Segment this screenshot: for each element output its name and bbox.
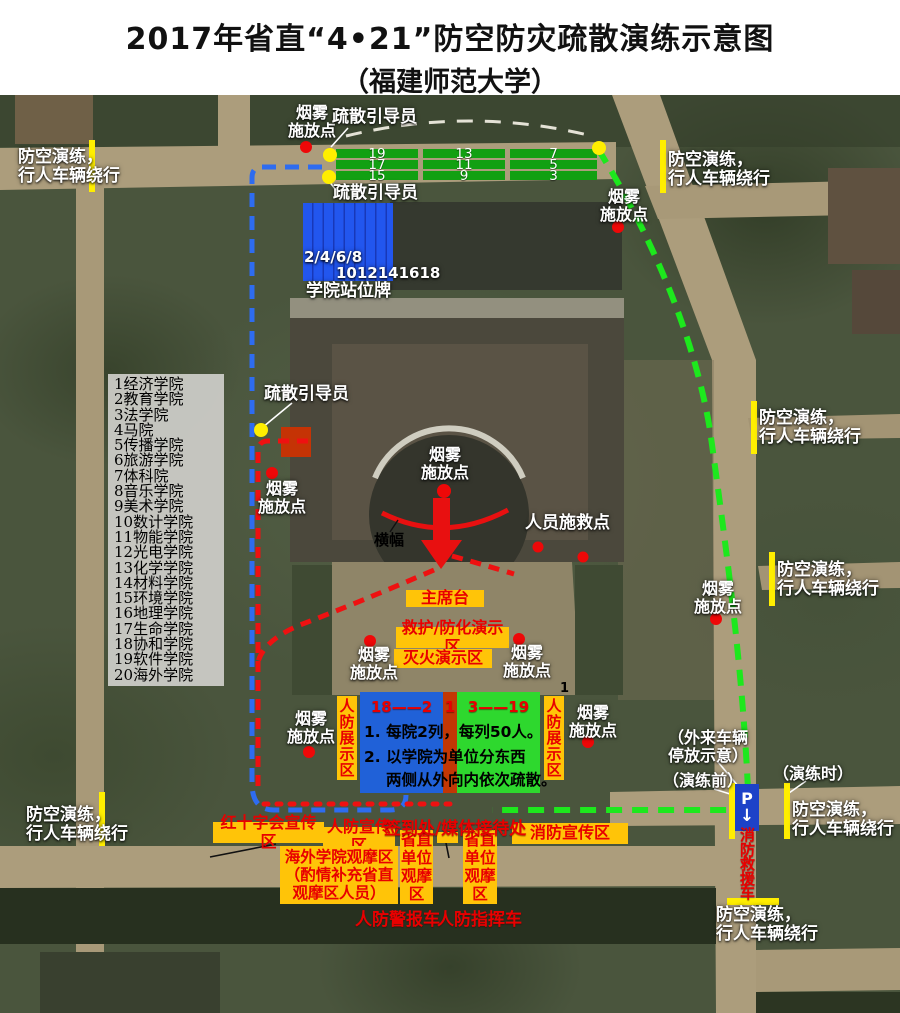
zone-fire-promo: 消防宣传区 (512, 823, 628, 844)
detour-label-northwest: 防空演练， 行人车辆绕行 (18, 148, 120, 186)
road-closure-bar (769, 552, 775, 606)
guide-label-top: 疏散引导员 (332, 108, 417, 127)
formation-note-3: 两侧从外向内依次疏散。 (386, 768, 557, 790)
station-sign-label: 学院站位牌 (306, 282, 391, 301)
road-closure-bar (784, 783, 790, 839)
rescue-point-dot (578, 552, 589, 563)
guide-dot (254, 423, 268, 437)
guide-dot (322, 170, 336, 184)
detour-label-northeast: 防空演练， 行人车辆绕行 (668, 151, 770, 189)
zone-provincial-viewing-west: 省直单位观摩区 (400, 830, 433, 904)
rescue-point-dot (533, 542, 544, 553)
checkin-label: 签到处/媒体接待处 (384, 814, 526, 839)
road-closure-bar (660, 140, 666, 193)
title-block: 2017年省直“4•21”防空防灾疏散演练示意图 （福建师范大学） (0, 0, 900, 95)
detour-label-southeast: 防空演练， 行人车辆绕行 (716, 906, 818, 944)
page-title: 2017年省直“4•21”防空防灾疏散演练示意图 (0, 14, 900, 58)
smoke-label: 烟雾 施放点 (594, 188, 654, 224)
smoke-label: 烟雾 施放点 (497, 644, 557, 680)
road-closure-bar (751, 401, 757, 454)
smoke-point-dot (437, 484, 451, 498)
smoke-label: 烟雾 施放点 (281, 710, 341, 746)
guide-dot (323, 148, 337, 162)
smoke-point-dot (303, 746, 315, 758)
zone-aid-demo: 救护/防化演示区 (396, 627, 509, 648)
smoke-label: 烟雾 施放点 (252, 480, 312, 516)
guide-label-mid: 疏散引导员 (333, 184, 418, 203)
page-subtitle: （福建师范大学） (0, 60, 900, 99)
zone-provincial-viewing-east: 省直单位观摩区 (463, 830, 497, 904)
detour-label-east1: 防空演练， 行人车辆绕行 (759, 409, 861, 447)
detour-label-east2: 防空演练， 行人车辆绕行 (777, 561, 879, 599)
stray-index-label: 1 (560, 681, 569, 696)
during-drill-label: （演练时） (773, 765, 853, 783)
evacuation-drill-map-page: 2017年省直“4•21”防空防灾疏散演练示意图 （福建师范大学） (0, 0, 900, 1013)
formation-note-1: 1. 每院2列，每列50人。 (364, 720, 542, 742)
college-item: 20海外学院 (114, 668, 222, 683)
zone-stage: 主席台 (406, 590, 484, 607)
detour-label-parking: 防空演练， 行人车辆绕行 (792, 801, 894, 839)
smoke-label: 烟雾 施放点 (344, 646, 404, 682)
parking-arrow-icon: ↓ (740, 807, 754, 825)
alarm-vehicle-label: 人防警报车 (355, 905, 440, 930)
pointer-checkin (446, 843, 449, 858)
formation-center-index: 1 (443, 698, 457, 716)
detour-label-southwest: 防空演练， 行人车辆绕行 (26, 806, 128, 844)
formation-west-range: 18——2 (363, 698, 440, 716)
formation-east-range: 3——19 (459, 698, 538, 716)
before-drill-label: （演练前） (663, 772, 743, 790)
guide-dot (592, 141, 606, 155)
pointer-guide-left (263, 403, 292, 427)
smoke-label: 烟雾 施放点 (415, 446, 475, 482)
parking-sign: P ↓ (735, 784, 759, 831)
parking-p-glyph: P (741, 790, 753, 807)
banner-label: 横幅 (374, 529, 404, 550)
smoke-point-dot (266, 467, 278, 479)
route-red-dashed-branch-east (452, 556, 514, 574)
guide-label-left: 疏散引导员 (264, 385, 349, 404)
command-vehicle-label: 人防指挥车 (437, 905, 522, 930)
smoke-label: 烟雾 施放点 (688, 580, 748, 616)
formation-note-2: 2. 以学院为单位分东西 (364, 745, 526, 767)
outside-vehicles-label: （外来车辆 停放示意） (662, 729, 754, 765)
college-legend: 1经济学院 2教育学院 3法学院 4马院 5传播学院 6旅游学院 7体科院 8音… (108, 374, 224, 686)
zone-red-cross-promo: 红十字会宣传区 (213, 822, 324, 843)
smoke-point-dot (300, 141, 312, 153)
fire-rescue-vehicle-label: 消防救援车 (739, 828, 756, 901)
station-block-label-evens2: 1012141618 (336, 265, 440, 282)
zone-overseas-viewing: 海外学院观摩区 （酌情补充省直 观摩区人员） (280, 846, 398, 904)
rescue-point-label: 人员施救点 (525, 514, 610, 533)
zone-fire-demo: 灭火演示区 (394, 649, 492, 668)
smoke-label: 烟雾 施放点 (563, 704, 623, 740)
